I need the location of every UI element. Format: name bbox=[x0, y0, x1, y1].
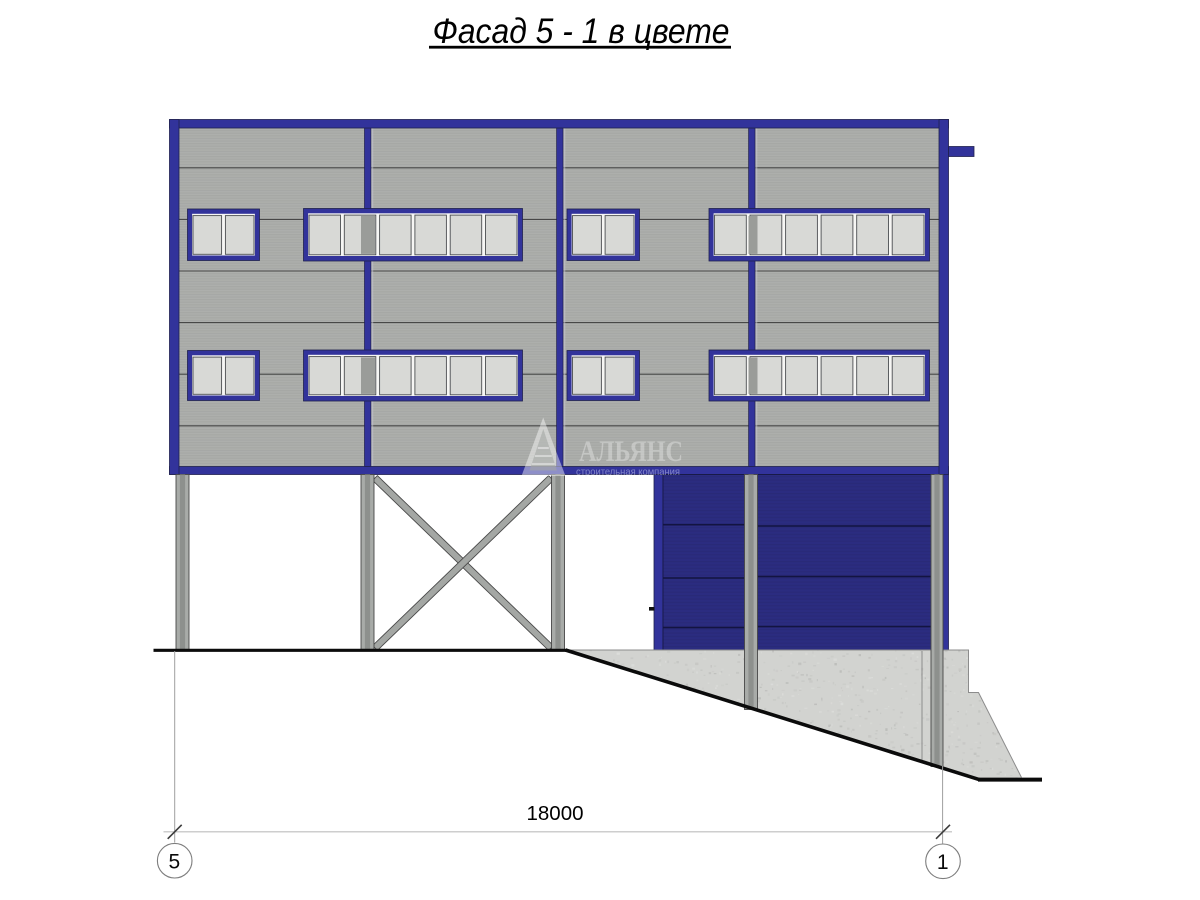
svg-text:строительная компания: строительная компания bbox=[576, 466, 680, 478]
svg-text:АЛЬЯНС: АЛЬЯНС bbox=[579, 435, 683, 468]
svg-text:18000: 18000 bbox=[526, 802, 583, 825]
svg-text:5: 5 bbox=[169, 850, 181, 873]
svg-text:Фасад 5 - 1 в цвете: Фасад 5 - 1 в цвете bbox=[433, 12, 730, 51]
svg-text:1: 1 bbox=[937, 851, 949, 874]
